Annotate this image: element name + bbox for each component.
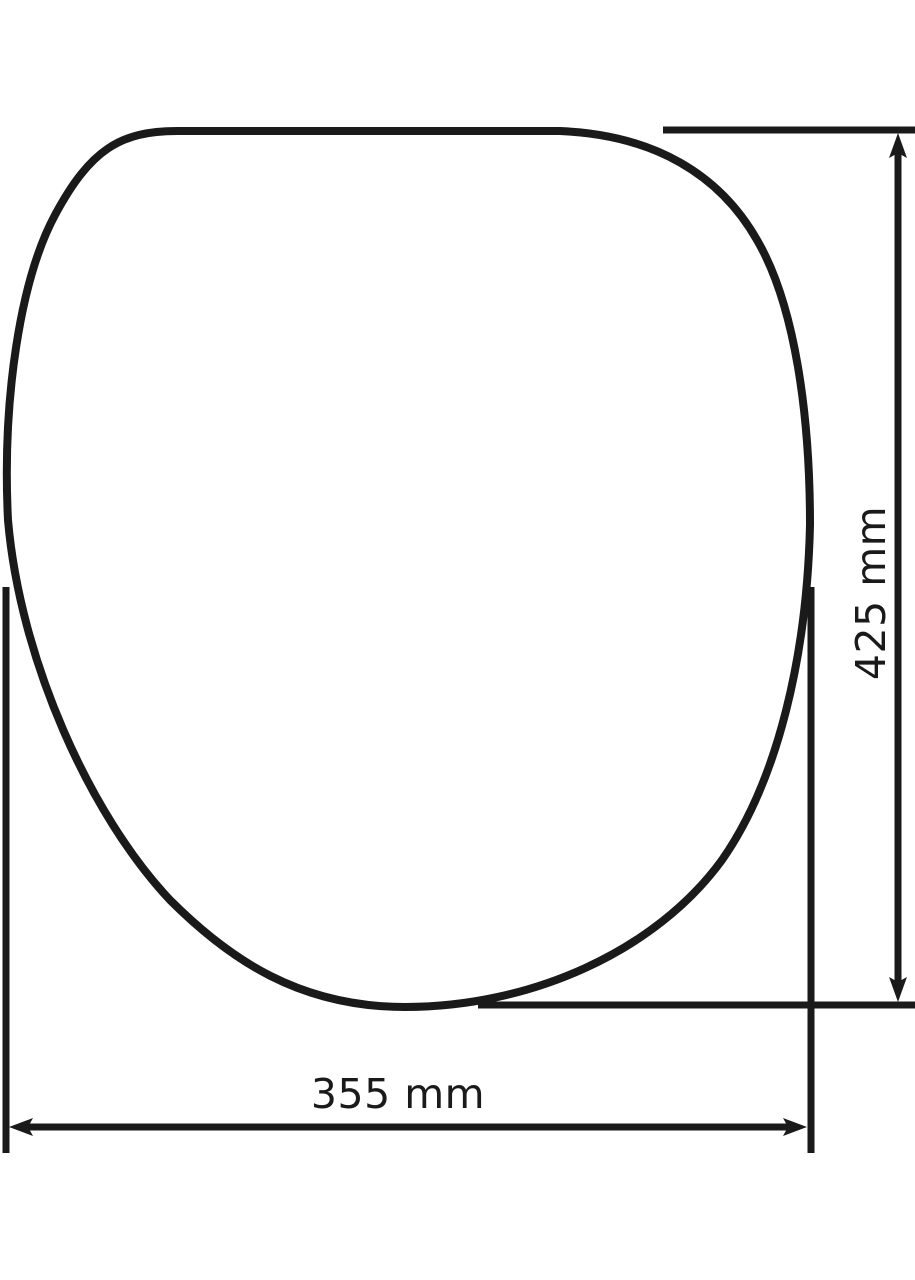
width-dimension-label: 355 mm [311, 1070, 485, 1118]
height-dimension-label: 425 mm [847, 506, 895, 680]
seat-outline [7, 131, 810, 1007]
dimension-diagram: 355 mm 425 mm [0, 0, 915, 1280]
width-dimension-line [9, 1118, 807, 1136]
drawing-svg: 355 mm 425 mm [0, 0, 915, 1280]
